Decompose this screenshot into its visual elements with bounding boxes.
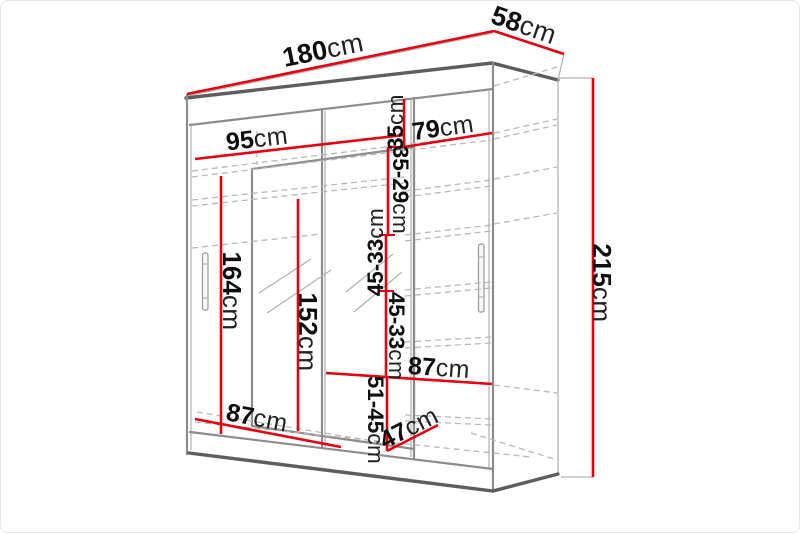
dimension-label-upper-shelf-gap: 35-29cm <box>389 146 414 235</box>
dimension-label-total-height: 215cm <box>587 243 617 322</box>
door-handle-right <box>479 244 485 312</box>
dimension-label-top-shelf-gap: 35cm <box>383 94 408 150</box>
dimension-label-right-section-width: 79cm <box>410 110 475 146</box>
dimension-label-mirror-height: 152cm <box>293 292 323 371</box>
dimension-label-middle-shelf-gap-lower: 45-33cm <box>385 292 410 381</box>
dimension-label-left-door-height: 164cm <box>217 251 247 330</box>
dimension-label-left-section-width: 95cm <box>225 122 290 157</box>
door-handle-left <box>203 253 209 310</box>
dimension-label-total-depth: 58cm <box>487 1 560 50</box>
dimension-label-middle-shelf-gap-upper: 45-33cm <box>363 208 388 297</box>
product-diagram-card: 180cm 58cm 215cm 95cm 79cm 35cm 35-29cm … <box>0 0 800 533</box>
dimension-label-right-shelf-width: 87cm <box>407 352 471 384</box>
wardrobe-dimension-diagram: 180cm 58cm 215cm 95cm 79cm 35cm 35-29cm … <box>1 1 800 534</box>
dimension-label-left-bottom-width: 87cm <box>224 398 290 437</box>
